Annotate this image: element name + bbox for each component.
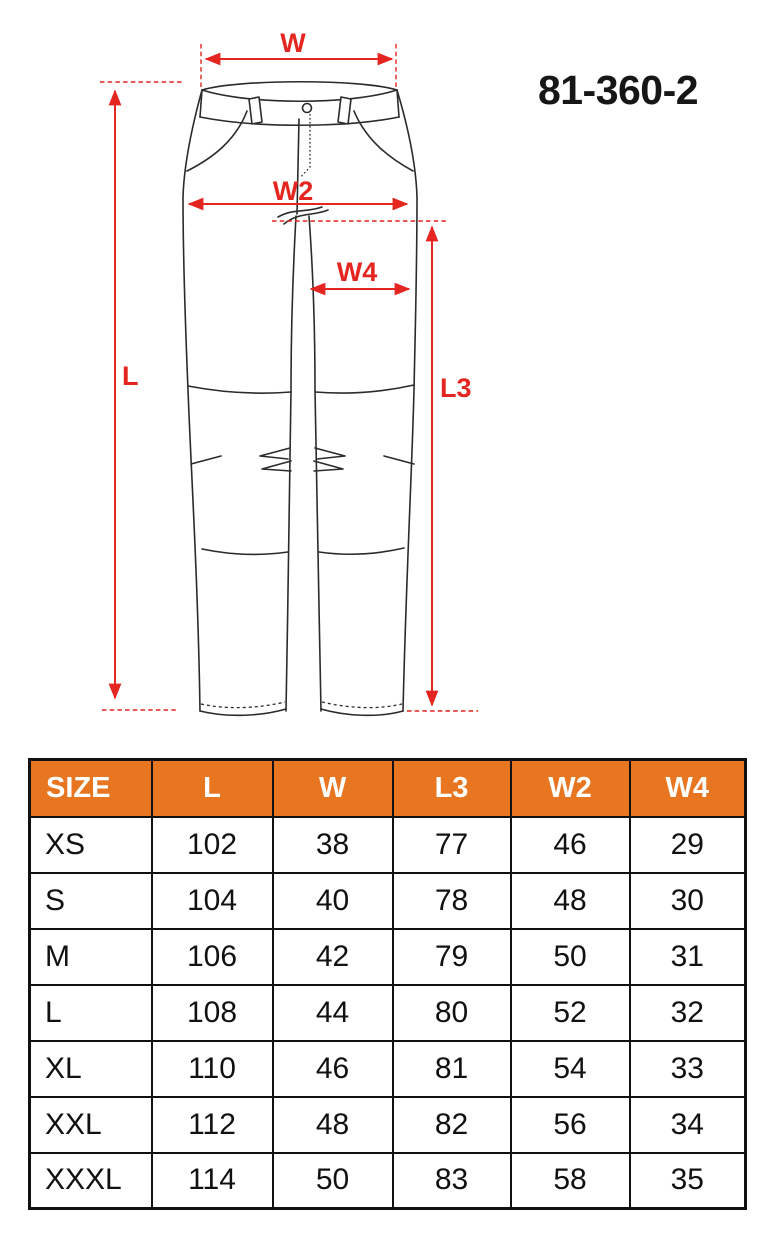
cell-w4: 35 [630, 1153, 746, 1209]
knee-seam-bottom-left [202, 549, 288, 554]
cell-w4: 32 [630, 985, 746, 1041]
fly-button [303, 104, 312, 113]
dim-label-l3: L3 [440, 373, 472, 403]
fly-stitch [300, 114, 310, 178]
cell-l3: 79 [393, 929, 511, 985]
cell-w2: 58 [511, 1153, 630, 1209]
inner-seam-right [309, 216, 321, 711]
table-row: L 108 44 80 52 32 [30, 985, 746, 1041]
table-row: XXXL 114 50 83 58 35 [30, 1153, 746, 1209]
cell-size: XXL [30, 1097, 152, 1153]
knee-seam-bottom-right [319, 548, 404, 554]
col-header-l: L [152, 760, 273, 817]
table-header-row: SIZE L W L3 W2 W4 [30, 760, 746, 817]
hem-stitch-left [201, 702, 285, 708]
cell-l3: 83 [393, 1153, 511, 1209]
dim-label-w: W [280, 28, 306, 58]
size-table: SIZE L W L3 W2 W4 XS 102 38 77 46 29 S 1… [28, 758, 747, 1210]
col-header-w4: W4 [630, 760, 746, 817]
inner-seam-left [286, 216, 296, 711]
table-row: M 106 42 79 50 31 [30, 929, 746, 985]
cell-l: 112 [152, 1097, 273, 1153]
cell-w2: 54 [511, 1041, 630, 1097]
dimension-l: L [100, 82, 183, 710]
cell-l: 106 [152, 929, 273, 985]
belt-loop-left [249, 97, 262, 124]
belt-loop-right [338, 97, 351, 124]
hem-stitch-right [322, 702, 402, 708]
table-row: XXL 112 48 82 56 34 [30, 1097, 746, 1153]
cell-size: S [30, 873, 152, 929]
knee-seam-top-left [188, 386, 291, 393]
knee-seam-top-right [315, 385, 414, 393]
col-header-size: SIZE [30, 760, 152, 817]
cell-w4: 33 [630, 1041, 746, 1097]
cell-size: XL [30, 1041, 152, 1097]
size-diagram-section: 81-360-2 [0, 0, 771, 758]
dim-label-w2: W2 [273, 176, 314, 206]
cell-w2: 46 [511, 817, 630, 873]
cell-l: 110 [152, 1041, 273, 1097]
cell-w4: 31 [630, 929, 746, 985]
cell-l: 102 [152, 817, 273, 873]
cell-w2: 48 [511, 873, 630, 929]
knee-marks [191, 448, 414, 471]
dim-label-l: L [122, 361, 139, 391]
product-code: 81-360-2 [538, 67, 698, 113]
cell-w2: 56 [511, 1097, 630, 1153]
cell-l3: 82 [393, 1097, 511, 1153]
cell-w4: 29 [630, 817, 746, 873]
cell-l3: 81 [393, 1041, 511, 1097]
cell-l3: 78 [393, 873, 511, 929]
cell-l: 114 [152, 1153, 273, 1209]
cell-l3: 80 [393, 985, 511, 1041]
cell-size: M [30, 929, 152, 985]
cell-size: XS [30, 817, 152, 873]
hem-left [200, 709, 286, 715]
trousers-diagram: 81-360-2 [0, 0, 771, 758]
cell-l3: 77 [393, 817, 511, 873]
cell-l: 108 [152, 985, 273, 1041]
cell-w2: 52 [511, 985, 630, 1041]
dimension-w: W [201, 28, 396, 90]
cell-size: XXXL [30, 1153, 152, 1209]
table-row: XS 102 38 77 46 29 [30, 817, 746, 873]
cell-w: 48 [273, 1097, 393, 1153]
col-header-w: W [273, 760, 393, 817]
cell-w: 42 [273, 929, 393, 985]
cell-w: 40 [273, 873, 393, 929]
outer-seam-left [183, 90, 202, 711]
cell-w: 44 [273, 985, 393, 1041]
cell-w4: 30 [630, 873, 746, 929]
cell-w4: 34 [630, 1097, 746, 1153]
dim-label-w4: W4 [337, 257, 378, 287]
cell-size: L [30, 985, 152, 1041]
dimension-l3: L3 [272, 221, 478, 711]
col-header-l3: L3 [393, 760, 511, 817]
table-row: S 104 40 78 48 30 [30, 873, 746, 929]
cell-w: 50 [273, 1153, 393, 1209]
table-row: XL 110 46 81 54 33 [30, 1041, 746, 1097]
cell-w: 38 [273, 817, 393, 873]
cell-w2: 50 [511, 929, 630, 985]
outer-seam-right [397, 90, 417, 711]
dimension-w2: W2 [189, 176, 407, 206]
hem-right [321, 709, 403, 715]
dimension-w4: W4 [311, 257, 409, 289]
cell-w: 46 [273, 1041, 393, 1097]
col-header-w2: W2 [511, 760, 630, 817]
cell-l: 104 [152, 873, 273, 929]
